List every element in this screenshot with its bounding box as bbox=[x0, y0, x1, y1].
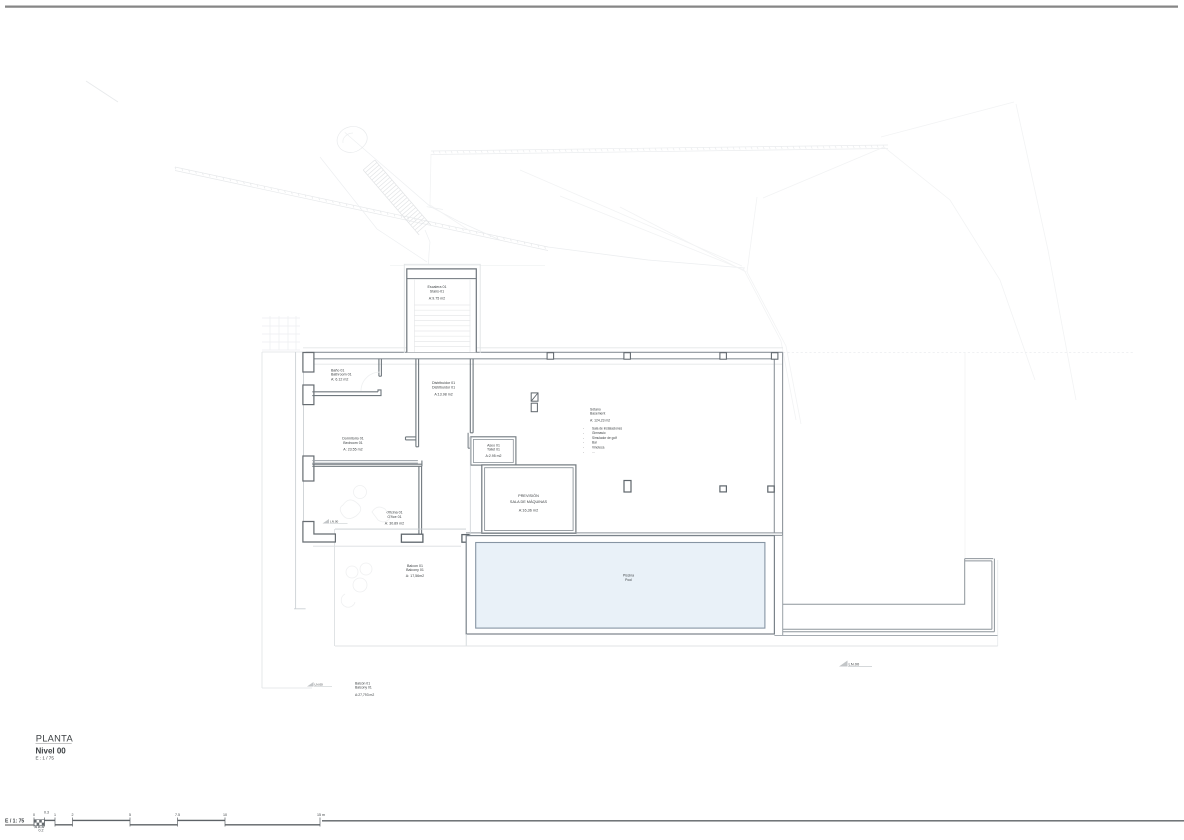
svg-text:Escalera 01: Escalera 01 bbox=[428, 285, 447, 289]
svg-text:-: - bbox=[583, 445, 584, 449]
svg-text:-: - bbox=[583, 441, 584, 445]
svg-text:Basement: Basement bbox=[590, 412, 605, 416]
svg-text:Bathroom 01: Bathroom 01 bbox=[331, 373, 352, 377]
svg-text:Balcony 01: Balcony 01 bbox=[355, 686, 372, 690]
svg-text:0.2: 0.2 bbox=[39, 829, 44, 833]
svg-text:Baño 01: Baño 01 bbox=[331, 368, 344, 372]
svg-text:Sala de instalaciones: Sala de instalaciones bbox=[592, 427, 623, 431]
svg-text:Gimnasio: Gimnasio bbox=[592, 431, 606, 435]
svg-text:Distribuidor 01: Distribuidor 01 bbox=[432, 381, 455, 385]
svg-text:-: - bbox=[583, 450, 584, 454]
svg-text:Pool: Pool bbox=[625, 578, 632, 582]
svg-text:A:2.95 m2: A:2.95 m2 bbox=[486, 454, 502, 458]
svg-text:-: - bbox=[583, 427, 584, 431]
svg-text:LN.00: LN.00 bbox=[849, 661, 860, 666]
svg-text:A: 17,56m2: A: 17,56m2 bbox=[406, 574, 424, 578]
svg-text:Vinoteca: Vinoteca bbox=[592, 445, 605, 449]
svg-text:Stairs-01: Stairs-01 bbox=[430, 289, 444, 293]
svg-text:5: 5 bbox=[129, 813, 131, 817]
svg-text:...: ... bbox=[592, 450, 595, 454]
svg-text:0.3: 0.3 bbox=[44, 811, 49, 815]
svg-text:SALA DE MÁQUINAS: SALA DE MÁQUINAS bbox=[510, 500, 548, 504]
svg-text:Balcony 01: Balcony 01 bbox=[406, 568, 424, 572]
svg-text:2: 2 bbox=[72, 813, 74, 817]
svg-text:PLANTA: PLANTA bbox=[36, 733, 74, 743]
svg-text:A:9.75 m2: A:9.75 m2 bbox=[429, 296, 445, 300]
svg-text:A: 23.55 m2: A: 23.55 m2 bbox=[343, 448, 362, 452]
svg-text:A: 124,23 m2: A: 124,23 m2 bbox=[590, 419, 610, 423]
svg-text:Distribuidor 01: Distribuidor 01 bbox=[432, 386, 455, 390]
svg-text:15 m: 15 m bbox=[317, 813, 325, 817]
svg-text:0: 0 bbox=[33, 813, 35, 817]
svg-text:1: 1 bbox=[54, 813, 56, 817]
svg-text:Bedroom 01: Bedroom 01 bbox=[343, 441, 363, 445]
svg-text:PREVISIÓN: PREVISIÓN bbox=[518, 493, 539, 498]
svg-text:-: - bbox=[583, 431, 584, 435]
svg-text:A: 30.89 m2: A: 30.89 m2 bbox=[385, 521, 404, 525]
svg-text:LN.00: LN.00 bbox=[330, 520, 339, 524]
svg-text:A:13.98 m2: A:13.98 m2 bbox=[434, 392, 452, 396]
svg-text:Balcon 01: Balcon 01 bbox=[407, 564, 423, 568]
svg-text:E : 1 / 75: E : 1 / 75 bbox=[36, 756, 55, 761]
svg-text:-: - bbox=[583, 436, 584, 440]
svg-text:10: 10 bbox=[223, 813, 227, 817]
svg-text:LN.00: LN.00 bbox=[315, 683, 324, 687]
svg-text:A:16,36 m2: A:16,36 m2 bbox=[519, 509, 538, 513]
svg-text:7.5: 7.5 bbox=[175, 813, 180, 817]
svg-text:Nivel 00: Nivel 00 bbox=[36, 747, 67, 756]
svg-text:Toilet 01: Toilet 01 bbox=[487, 448, 500, 452]
svg-text:A: 6.12 m2: A: 6.12 m2 bbox=[331, 377, 348, 381]
svg-text:Piscina: Piscina bbox=[623, 573, 634, 577]
svg-text:A:27,793 m2: A:27,793 m2 bbox=[355, 693, 374, 697]
svg-text:Simulador de golf: Simulador de golf bbox=[592, 436, 617, 440]
svg-text:E / 1: 75: E / 1: 75 bbox=[5, 819, 24, 825]
svg-text:Dormitorio 01: Dormitorio 01 bbox=[342, 437, 364, 441]
